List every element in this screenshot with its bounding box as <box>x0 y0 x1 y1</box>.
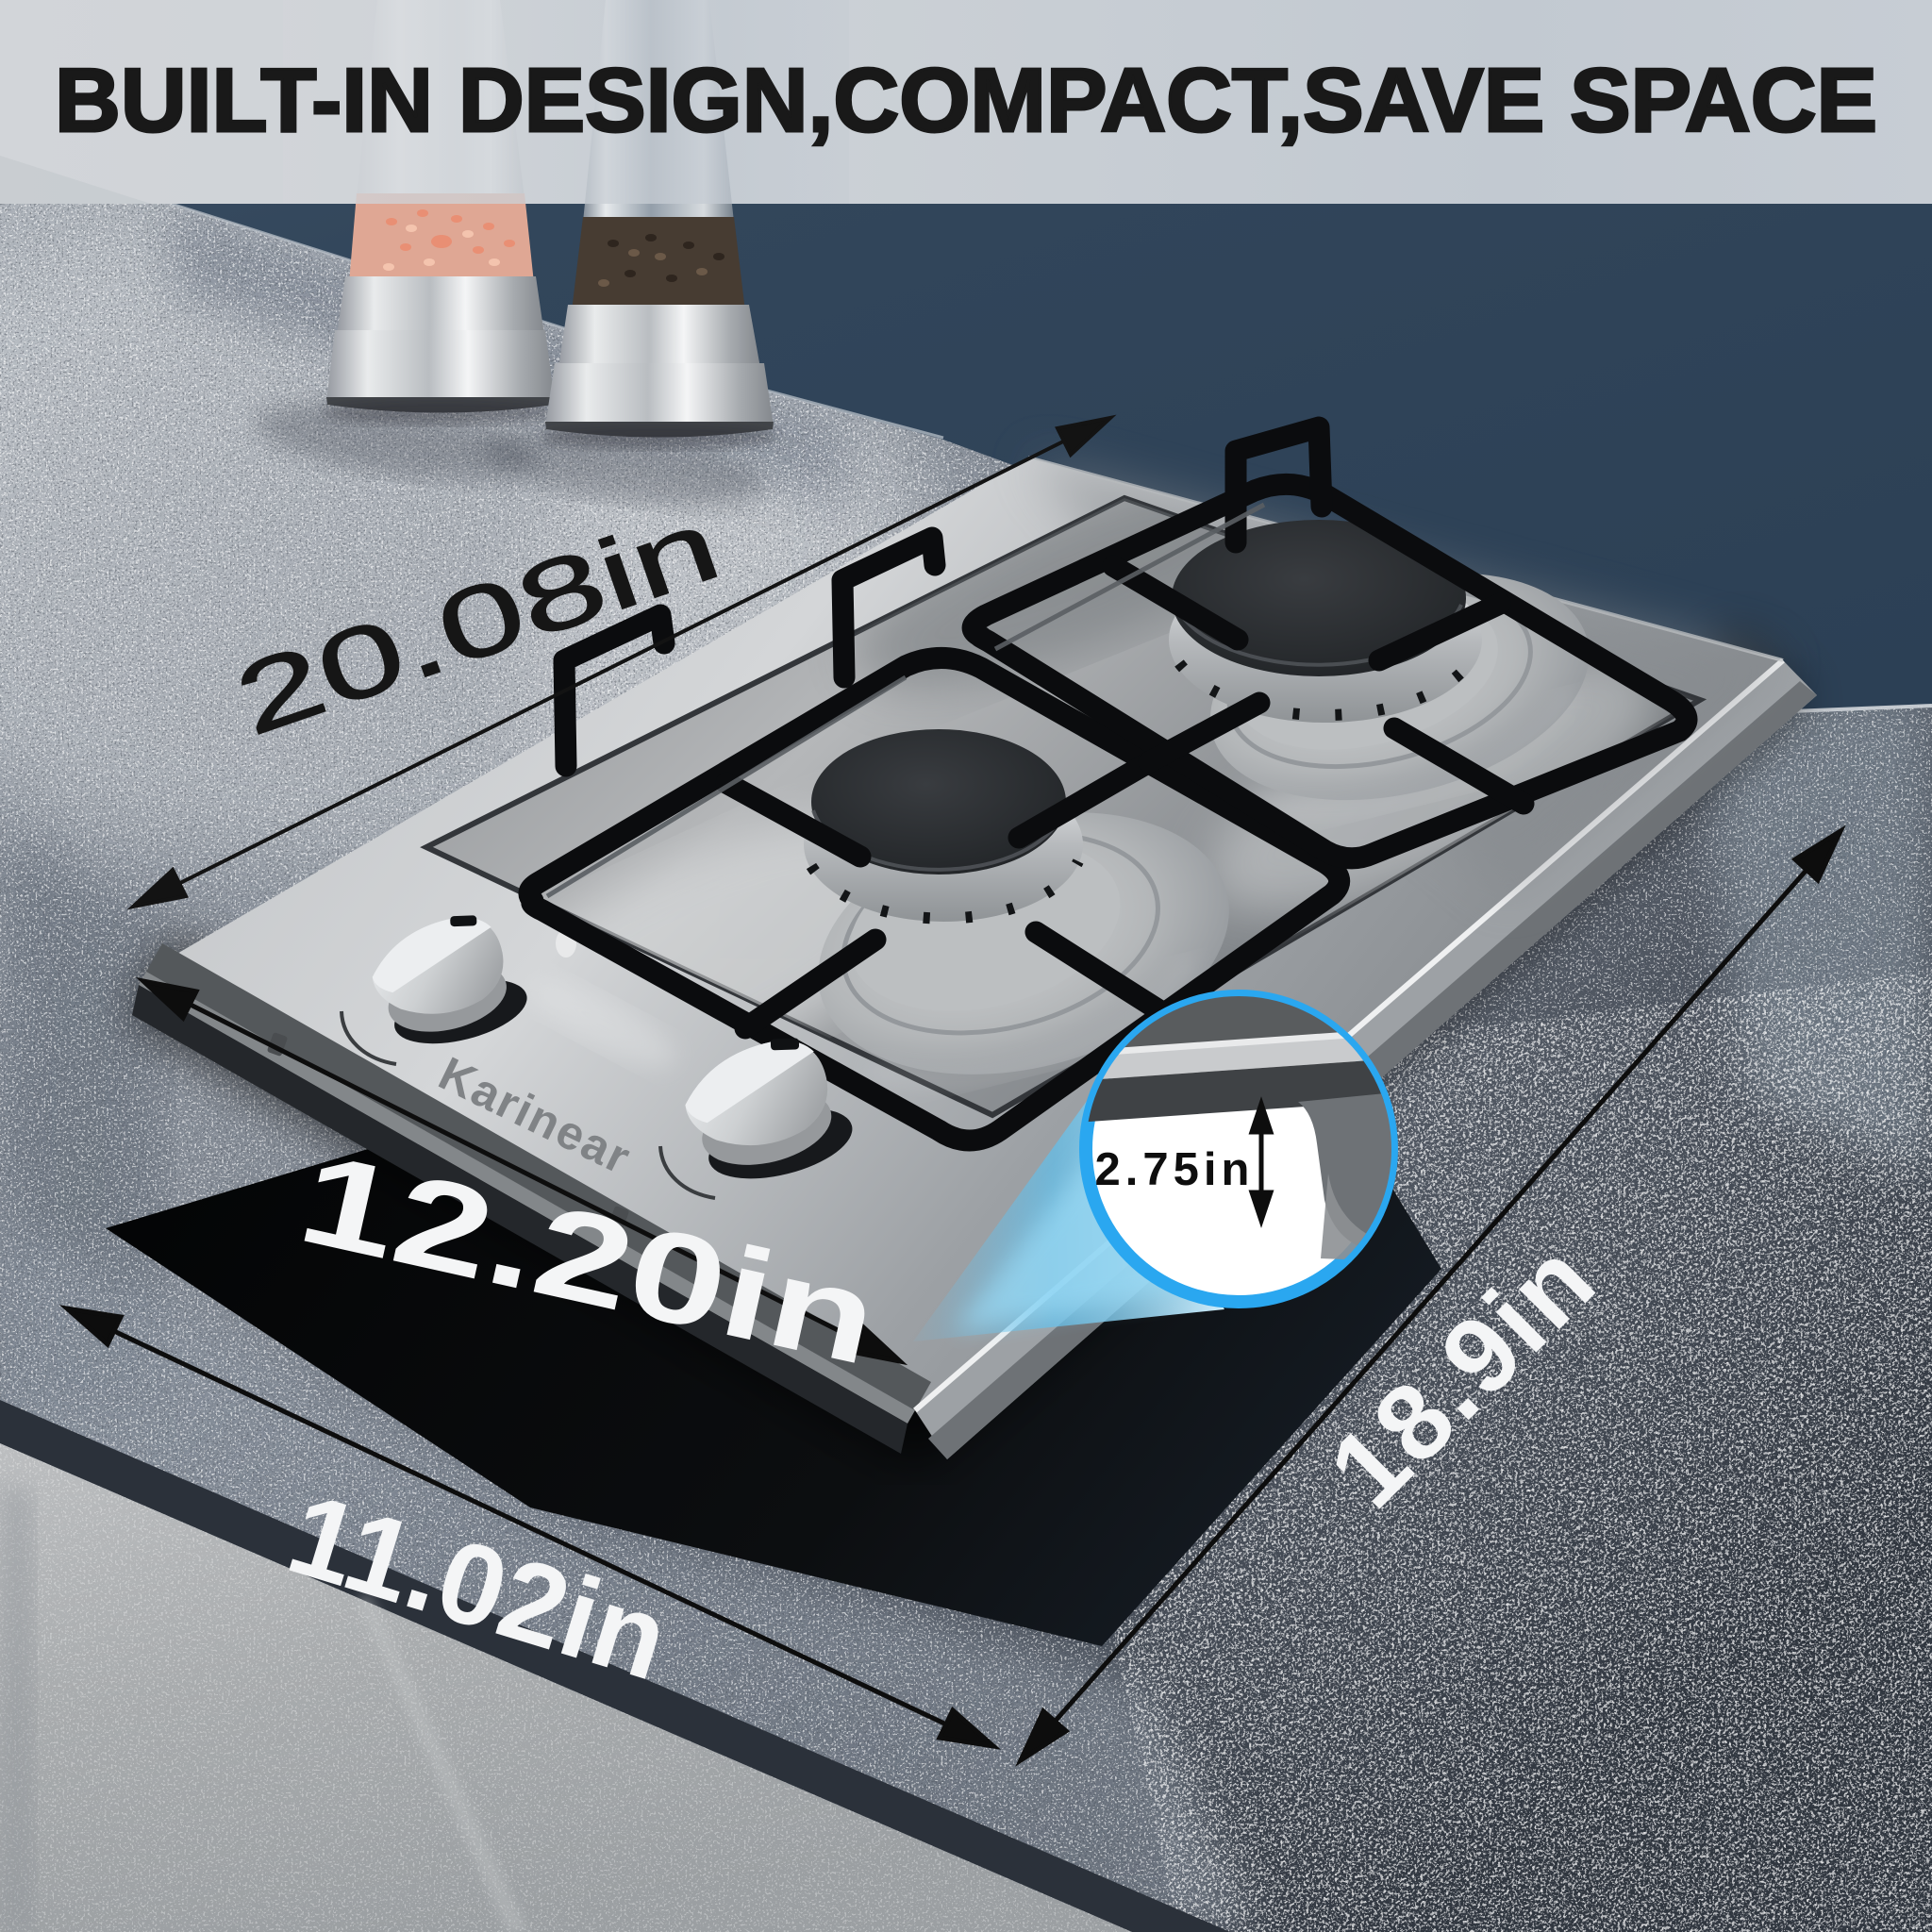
svg-text:2.75in: 2.75in <box>1095 1144 1255 1195</box>
svg-text:BUILT-IN DESIGN,COMPACT,SAVE S: BUILT-IN DESIGN,COMPACT,SAVE SPACE <box>55 50 1877 151</box>
